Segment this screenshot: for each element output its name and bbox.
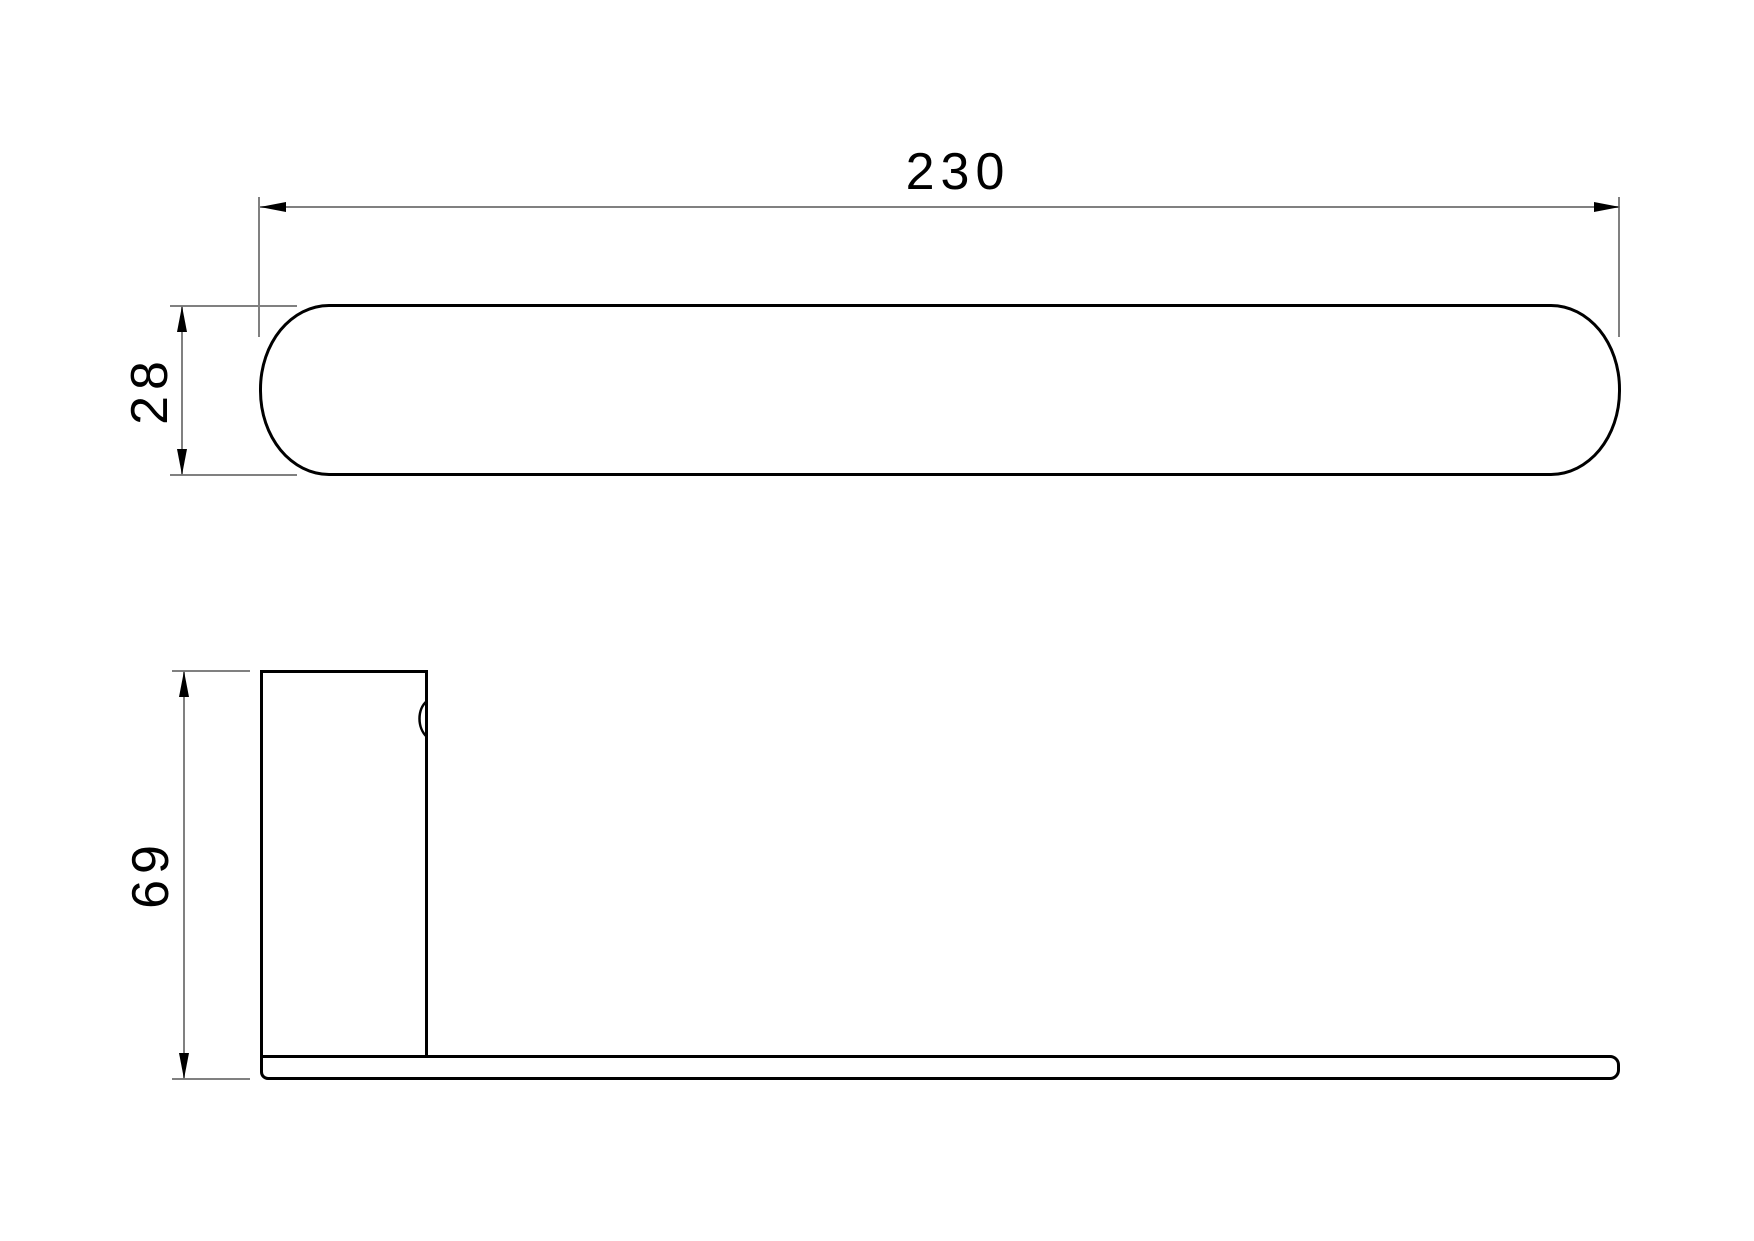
dimension-label-width: 230 [906,146,1011,198]
dimension-label-depth: 28 [124,355,176,425]
technical-drawing-canvas: 230 28 69 [0,0,1754,1241]
arrowhead-up-icon [179,671,189,697]
arrowhead-up-icon [177,306,187,332]
dimension-line-height [183,671,185,1079]
arrowhead-right-icon [1594,202,1620,212]
mount-post-outline [260,670,428,1056]
extension-line-bottom [170,474,297,476]
rail-bar-outline [260,1055,1620,1080]
arrowhead-down-icon [179,1053,189,1079]
endcap-seam-arc [414,700,430,738]
dimension-line-width [260,206,1620,208]
extension-line-right [1618,197,1620,337]
arrowhead-left-icon [260,202,286,212]
extension-line-top [170,305,297,307]
dimension-label-height: 69 [125,839,177,909]
rail-top-view-outline [259,304,1621,476]
arrowhead-down-icon [177,449,187,475]
extension-line-left [258,197,260,337]
